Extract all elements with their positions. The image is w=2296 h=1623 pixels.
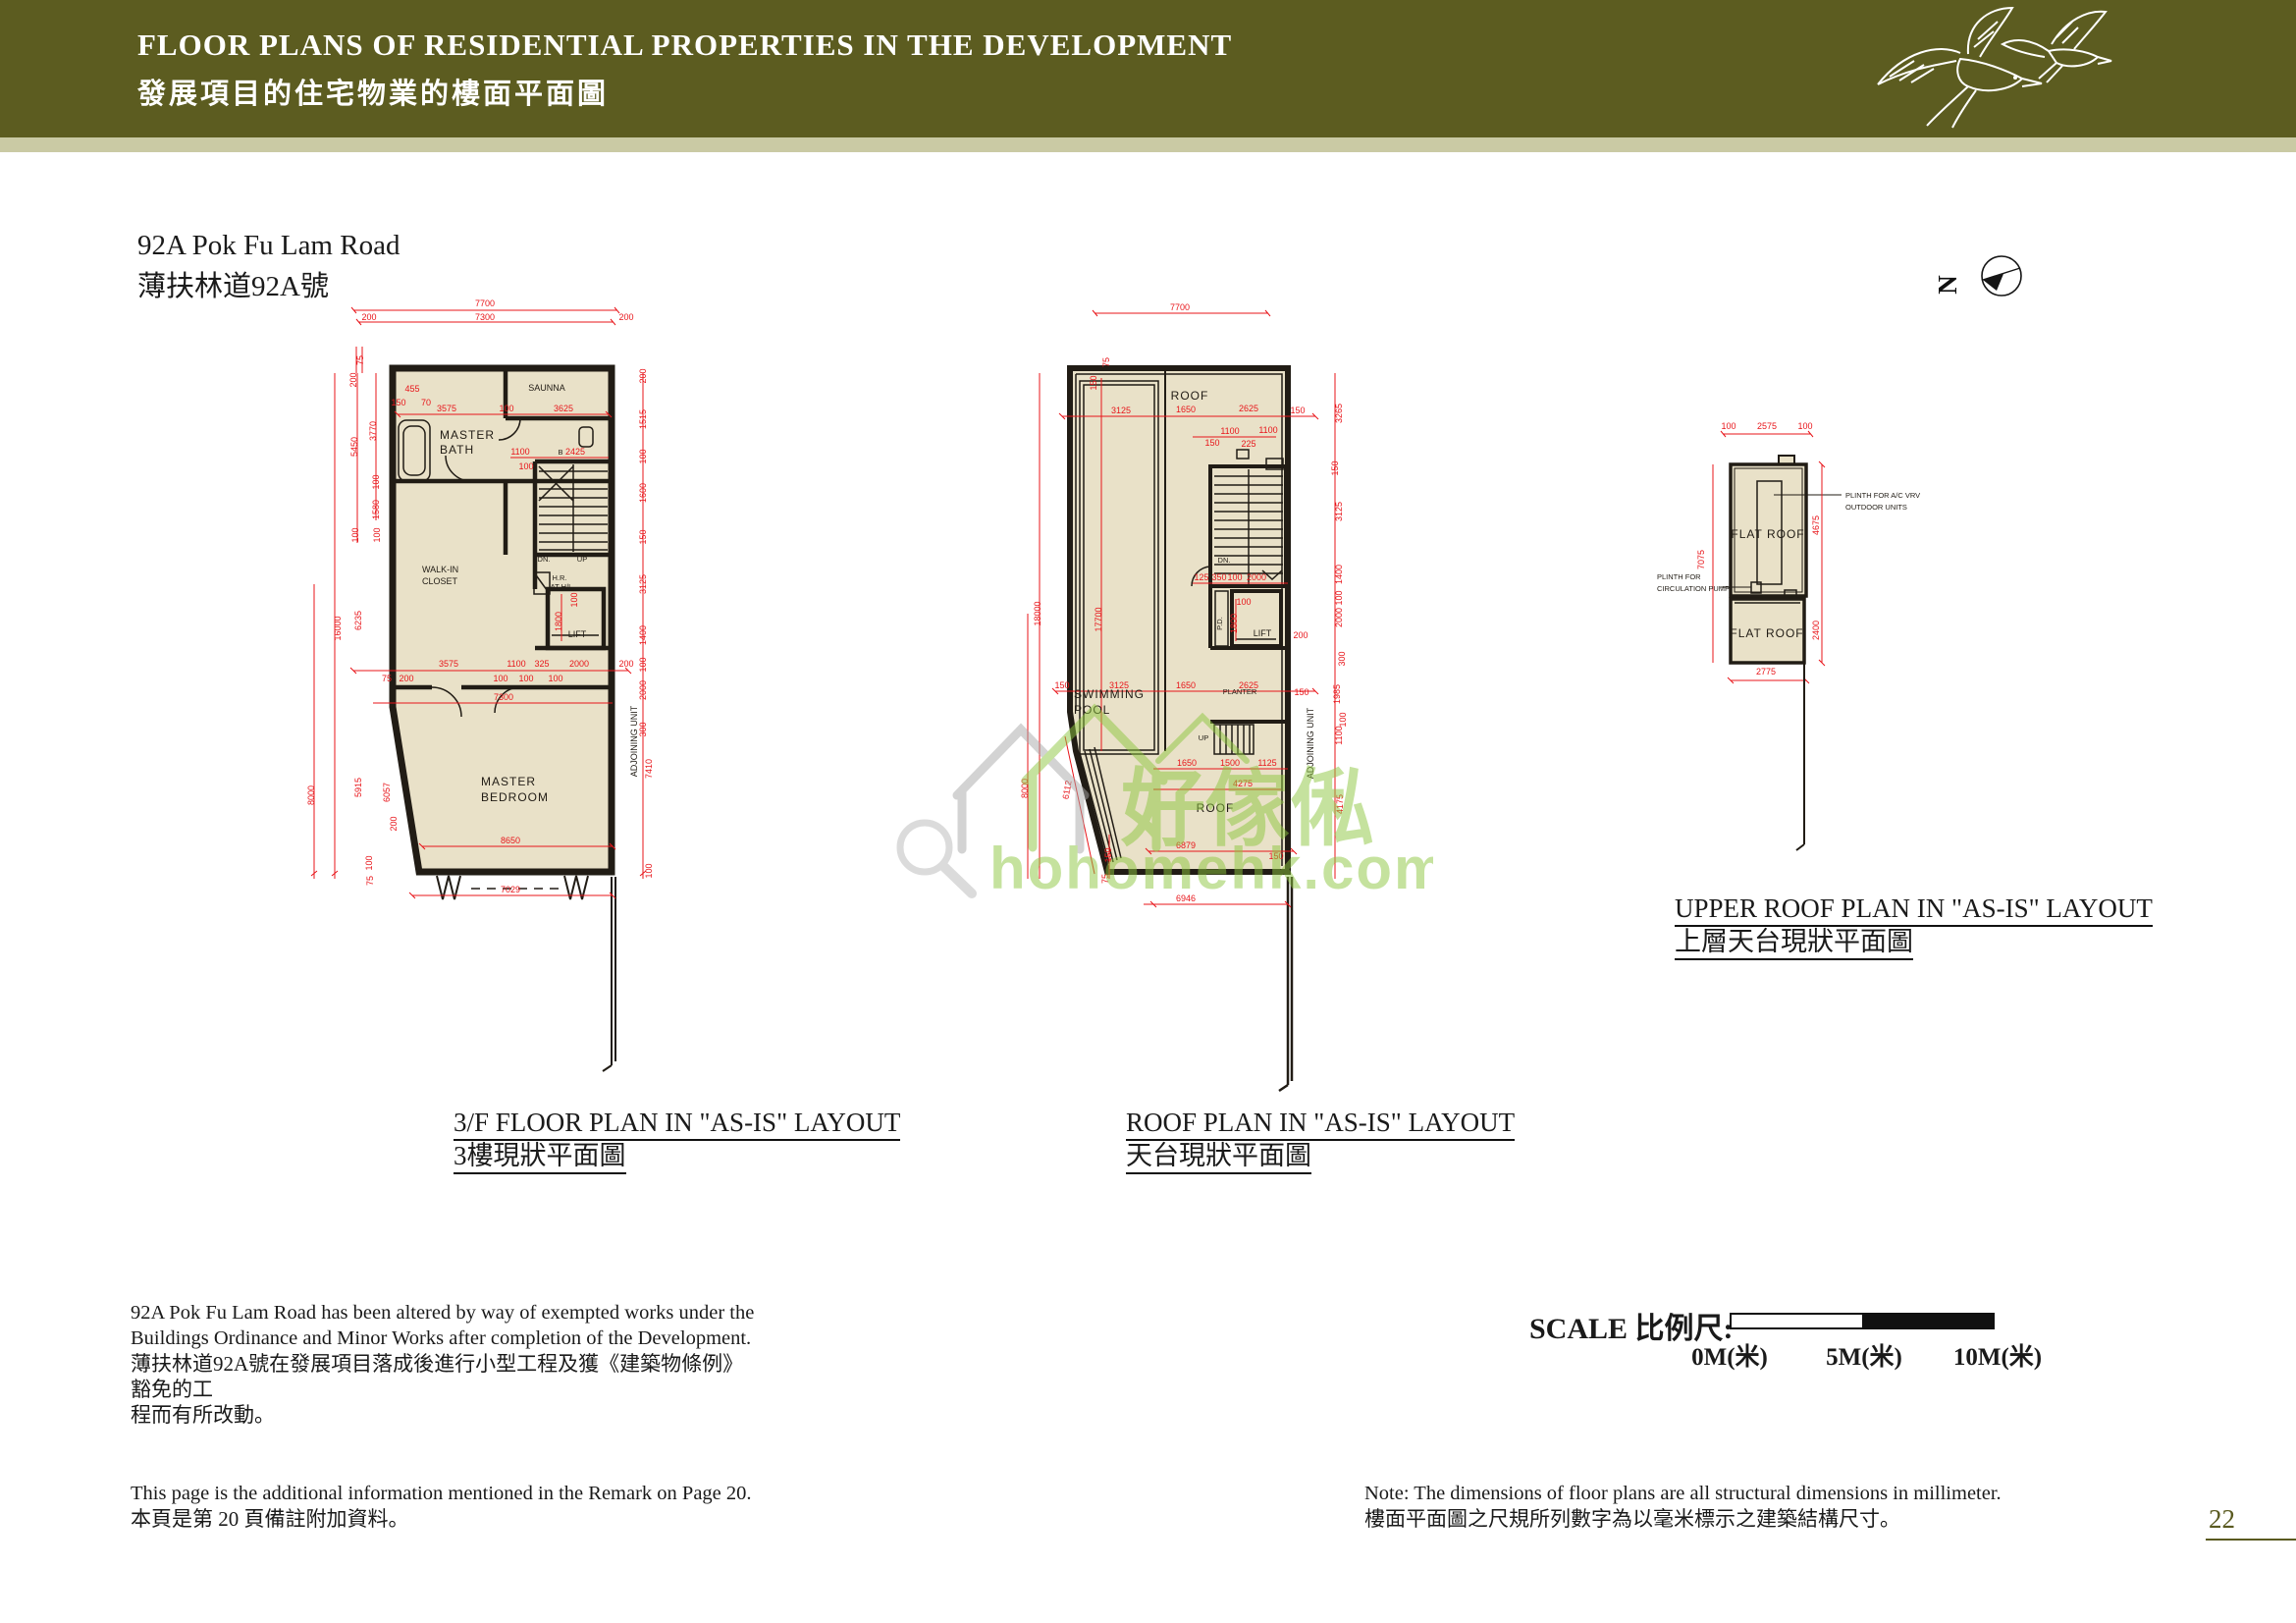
plan-text: 3125: [1111, 406, 1131, 415]
caption-upper-roof-en: UPPER ROOF PLAN IN "AS-IS" LAYOUT: [1675, 893, 2153, 927]
plan-text: 3125: [1334, 502, 1344, 521]
plan-text: 7700: [1170, 302, 1190, 312]
plan-text: 2775: [1756, 667, 1776, 676]
plan-text: 200: [618, 659, 633, 669]
plan-text: 1400: [638, 625, 648, 645]
scale-mark-5m: 5M(米): [1826, 1337, 1902, 1373]
plan-text: BATH: [440, 443, 474, 457]
plan-text: 7700: [475, 298, 495, 308]
plan-text: 1100: [507, 659, 525, 669]
plan-text: 100: [518, 674, 533, 683]
plan-text: 100: [1334, 590, 1344, 605]
caption-roof-en: ROOF PLAN IN "AS-IS" LAYOUT: [1126, 1108, 1515, 1141]
plan-text: 75: [355, 355, 365, 365]
plan-text: ROOF: [1171, 389, 1209, 403]
plan-text: 2000: [569, 659, 589, 669]
plan-text: 300: [638, 722, 648, 736]
watermark: hohomehk.com 好傢俬: [864, 682, 1433, 997]
plan-text: 70: [421, 398, 431, 407]
plan-text: 325: [534, 659, 549, 669]
plan-text: OUTDOOR UNITS: [1845, 503, 1907, 512]
plan-text: MASTER: [440, 428, 495, 442]
plan-text: H.R.: [553, 573, 567, 582]
plan-text: 7410: [644, 759, 654, 779]
brochure-page: FLOOR PLANS OF RESIDENTIAL PROPERTIES IN…: [0, 0, 2296, 1623]
plan-text: 5450: [349, 437, 359, 457]
plan-text: CLOSET: [422, 576, 458, 586]
plan-text: FLAT ROOF: [1731, 527, 1804, 541]
birds-illustration: [1821, 0, 2145, 137]
plan-text: 150: [1089, 375, 1098, 390]
plan-text: 100: [350, 527, 360, 542]
plan-text: 200: [1293, 630, 1308, 640]
plan-text: 350: [1211, 572, 1226, 582]
page-title: FLOOR PLANS OF RESIDENTIAL PROPERTIES IN…: [137, 27, 1232, 63]
plan-text: 1100: [1220, 426, 1239, 436]
caption-3f-en: 3/F FLOOR PLAN IN "AS-IS" LAYOUT: [454, 1108, 900, 1141]
plan-text: PLINTH FOR: [1657, 572, 1701, 581]
alteration-note-zh-line1: 薄扶林道92A號在發展項目落成後進行小型工程及獲《建築物條例》豁免的工: [131, 1351, 759, 1402]
page-reference-zh: 本頁是第 20 頁備註附加資料。: [131, 1506, 759, 1532]
page-title-chinese: 發展項目的住宅物業的樓面平面圖: [137, 71, 609, 112]
plan-text: 6235: [353, 611, 363, 630]
plan-text: 300: [1337, 651, 1347, 666]
plan-text: 100: [638, 657, 648, 672]
plan-text: 150: [391, 398, 405, 407]
plan-text: 1100: [1258, 425, 1277, 435]
dimension-note: Note: The dimensions of floor plans are …: [1364, 1481, 2150, 1532]
plan-text: 8650: [501, 836, 520, 845]
page-reference-note: This page is the additional information …: [131, 1481, 759, 1532]
plan-text: N: [1939, 275, 1962, 295]
plan-text: DN.: [538, 555, 551, 564]
plan-text: 7075: [1696, 550, 1706, 569]
page-reference-en: This page is the additional information …: [131, 1481, 759, 1506]
caption-upper-roof-plan: UPPER ROOF PLAN IN "AS-IS" LAYOUT 上層天台現狀…: [1675, 893, 2153, 960]
plan-text: 200: [399, 674, 413, 683]
north-label-layer: N: [1939, 275, 1962, 295]
plan-text: 100: [518, 461, 533, 471]
plan-text: 3770: [368, 421, 378, 441]
plan-text: 150: [1330, 460, 1340, 475]
plan-text: LIFT: [1254, 628, 1272, 638]
scale-bar-white-segment: [1730, 1313, 1864, 1329]
page-number: 22: [2209, 1504, 2235, 1535]
plan-text: 1100: [510, 447, 529, 457]
plan-text: FLAT ROOF: [1730, 626, 1803, 640]
plan-text: 100: [1721, 421, 1735, 431]
plan-text: 3125: [638, 574, 648, 594]
plan-text: 100: [644, 863, 654, 878]
plan-text: 200: [389, 816, 399, 831]
plan-text: 8000: [306, 785, 316, 805]
plan-text: ADJOINING UNIT: [629, 705, 639, 777]
north-compass: N: [1939, 242, 2047, 310]
plan-text: 75: [1101, 357, 1111, 367]
address-title: 92A Pok Fu Lam Road: [137, 230, 400, 262]
dimension-note-zh: 樓面平面圖之尺規所列數字為以毫米標示之建築結構尺寸。: [1364, 1506, 2150, 1532]
plan-text: AT H/L: [551, 582, 573, 591]
dimension-note-en: Note: The dimensions of floor plans are …: [1364, 1481, 2150, 1506]
plan-text: 5915: [353, 778, 363, 797]
plan-text: 100: [638, 449, 648, 463]
floor-plan-3f-drawing: 7700730020020045515070357510036251100242…: [196, 290, 658, 1085]
plan-text: PLINTH FOR A/C VRV: [1845, 491, 1920, 500]
plan-text: 2000: [638, 680, 648, 700]
plan-text: 16000: [333, 616, 343, 640]
plan-text: 7300: [475, 312, 495, 322]
plan-text: 225: [1241, 439, 1255, 449]
plan-text: LIFT: [568, 629, 587, 639]
plan-text: 150: [638, 529, 648, 544]
alteration-note-zh-line2: 程而有所改動。: [131, 1402, 759, 1428]
caption-roof-zh: 天台現狀平面圖: [1126, 1141, 1311, 1174]
plan-text: 75: [382, 674, 392, 683]
plan-text: 2000: [1247, 572, 1266, 582]
plan-text: 100: [569, 592, 579, 607]
plan-text: B: [558, 448, 562, 457]
plan-text: P.D.: [1215, 617, 1224, 630]
plan-text: BEDROOM: [481, 790, 549, 804]
scale-mark-0m: 0M(米): [1691, 1337, 1768, 1373]
alteration-note-en-line1: 92A Pok Fu Lam Road has been altered by …: [131, 1300, 759, 1325]
plan-text: 150: [1204, 438, 1219, 448]
plan-text: 3575: [437, 404, 456, 413]
plan-text: 3625: [554, 404, 573, 413]
plan-text: 100: [499, 404, 513, 413]
plan-text: 2425: [565, 447, 585, 457]
caption-roof-plan: ROOF PLAN IN "AS-IS" LAYOUT 天台現狀平面圖: [1126, 1108, 1515, 1174]
upper-roof-plan-drawing: 10025751004675240027757075FLAT ROOFFLAT …: [1629, 412, 1944, 854]
plan-text: 1515: [638, 409, 648, 429]
plan-text: 6057: [382, 783, 392, 802]
plan-text: UP: [577, 555, 587, 564]
plan-text: 100: [1236, 597, 1251, 607]
plan-text: 200: [638, 368, 648, 383]
plan-text: 7029: [501, 885, 520, 894]
plan-text: 2625: [1239, 404, 1258, 413]
page-number-rule: [2206, 1539, 2296, 1541]
plan-text: 3575: [439, 659, 458, 669]
plan-text: 100: [371, 474, 381, 489]
plan-text: 17700: [1094, 607, 1103, 631]
plan-text: MASTER: [481, 775, 536, 788]
plan-text: 100: [372, 527, 382, 542]
plan-text: 2575: [1757, 421, 1777, 431]
plan-text: 2000: [1334, 608, 1344, 627]
plan-text: CIRCULATION PUMP: [1657, 584, 1730, 593]
plan-text: 1600: [638, 483, 648, 503]
plan-text: 75: [365, 876, 375, 886]
plan-text: 18000: [1033, 601, 1042, 625]
plan-text: WALK-IN: [422, 565, 458, 574]
alteration-note-en-line2: Buildings Ordinance and Minor Works afte…: [131, 1325, 759, 1351]
scale-bar-black-segment: [1864, 1313, 1995, 1329]
caption-3f-plan: 3/F FLOOR PLAN IN "AS-IS" LAYOUT 3樓現狀平面圖: [454, 1108, 900, 1174]
plan-text: 200: [348, 372, 358, 387]
plan-text: 100: [1227, 572, 1242, 582]
scale-mark-10m: 10M(米): [1953, 1337, 2042, 1373]
plan-text: 1650: [1176, 405, 1196, 414]
plan-text: 3265: [1334, 404, 1344, 423]
plan-text: 200: [361, 312, 376, 322]
plan-text: 455: [404, 384, 419, 394]
watermark-chinese: 好傢俬: [1120, 762, 1374, 856]
plan-text: 100: [548, 674, 562, 683]
alteration-note: 92A Pok Fu Lam Road has been altered by …: [131, 1300, 759, 1428]
header-accent-strip: [0, 137, 2296, 152]
plan-text: 1400: [1334, 565, 1344, 584]
plan-text: 7300: [494, 692, 513, 702]
plan-text: 150: [1290, 406, 1305, 415]
plan-text: 1800: [554, 612, 563, 631]
plan-text: 1800: [1229, 614, 1239, 633]
plan-text: 100: [364, 855, 374, 870]
plan-text: DN.: [1218, 556, 1231, 565]
plan-text: 100: [1797, 421, 1812, 431]
caption-3f-zh: 3樓現狀平面圖: [454, 1141, 626, 1174]
plan-text: 2400: [1811, 621, 1821, 640]
plan-text: 200: [618, 312, 633, 322]
plan-text: 1580: [371, 500, 381, 519]
plan-text: 125: [1194, 572, 1208, 582]
caption-upper-roof-zh: 上層天台現狀平面圖: [1675, 927, 1913, 960]
plan-text: 4675: [1811, 515, 1821, 535]
plan-text: SAUNNA: [528, 383, 565, 393]
bird-eye: [2013, 76, 2017, 80]
plan-text: 100: [493, 674, 507, 683]
